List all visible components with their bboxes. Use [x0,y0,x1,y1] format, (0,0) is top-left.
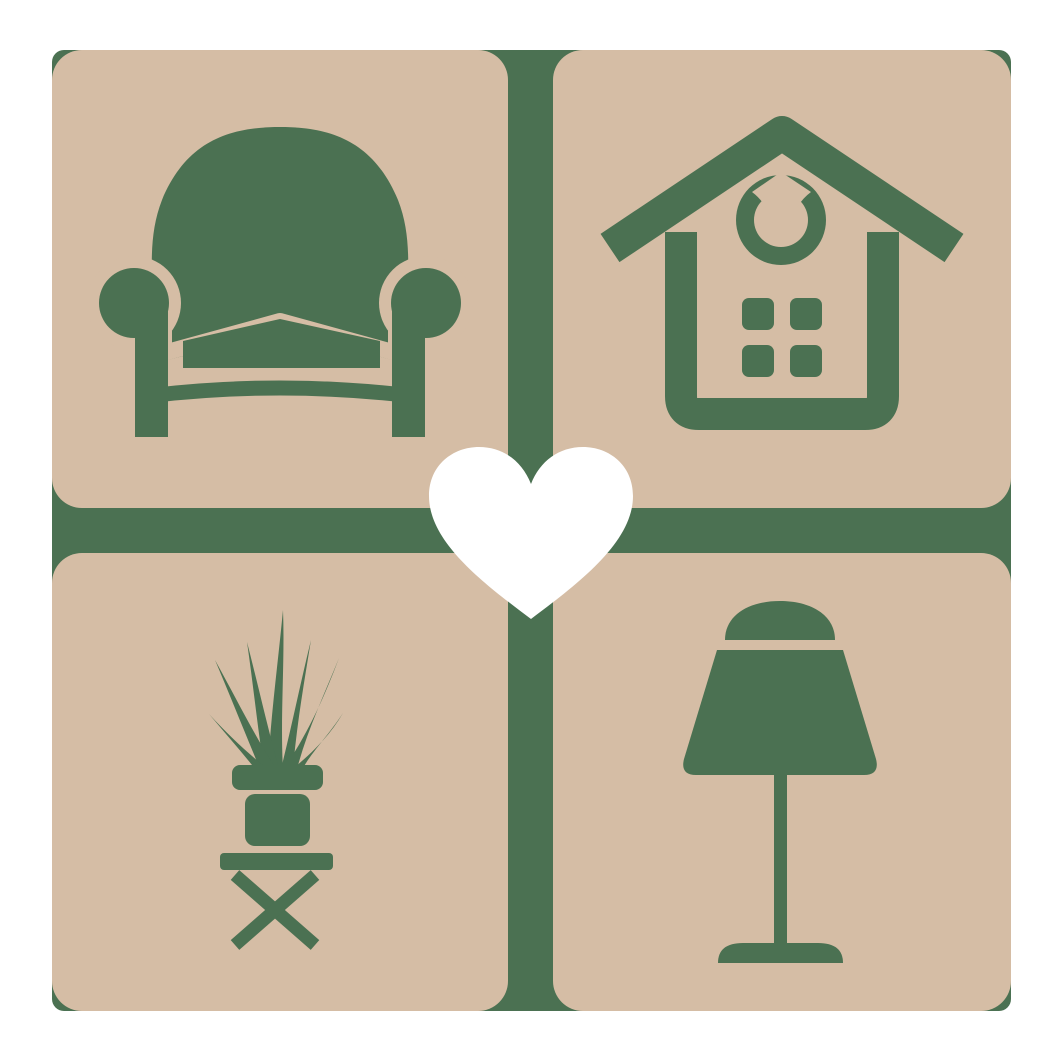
tile-house [553,50,1011,508]
armchair-icon [52,50,508,508]
tile-armchair [52,50,508,508]
heart-icon [421,441,641,625]
house-icon [553,50,1011,508]
logo-canvas [0,0,1063,1063]
